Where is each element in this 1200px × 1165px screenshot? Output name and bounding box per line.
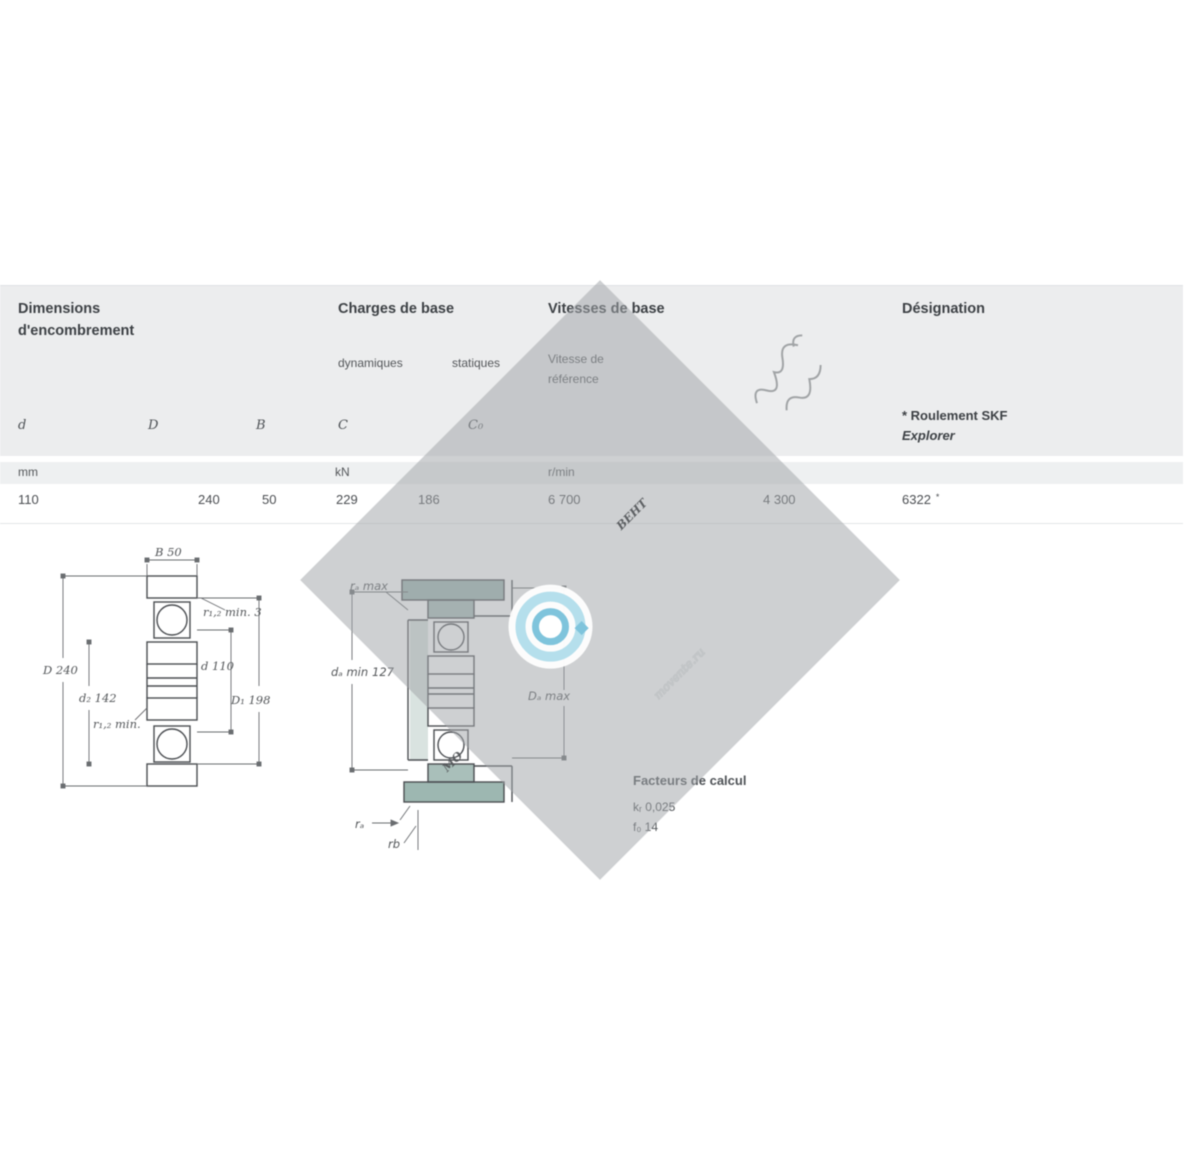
bearing-section-outline	[147, 576, 197, 786]
dim-label-d2: d₂ 142	[79, 691, 117, 705]
explorer-note-line1: * Roulement SKF	[902, 408, 1007, 424]
page-content: Dimensions d'encombrement Charges de bas…	[0, 0, 1200, 1165]
col-title-designation: Désignation	[902, 300, 985, 318]
symbol-C: C	[338, 418, 348, 434]
unit-rmin: r/min	[548, 465, 575, 480]
explorer-star: *	[931, 492, 940, 502]
housing-shaft-shading	[402, 580, 504, 802]
symbol-d: d	[18, 418, 26, 434]
table-bottom-rule	[0, 523, 1183, 524]
symbol-D: D	[148, 418, 158, 434]
unit-kn: kN	[335, 465, 350, 480]
calc-title: Facteurs de calcul	[633, 773, 746, 789]
dim-label-Da-max: Dₐ max	[528, 689, 570, 703]
explorer-note-line2: Explorer	[902, 428, 955, 444]
dim-label-da-min: dₐ min	[331, 665, 368, 679]
watermark-brand-right: ВЕНТ	[613, 495, 651, 533]
dim-label-r12-inner: r₁,₂ min.	[93, 717, 141, 731]
dim-label-da-value: 127	[372, 665, 395, 679]
dim-label-ra: rₐ	[355, 817, 364, 831]
unit-mm: mm	[18, 465, 38, 480]
cell-static-C0: 186	[418, 492, 440, 508]
dim-label-D1: D₁ 198	[230, 693, 270, 707]
table-units-band	[0, 462, 1183, 484]
symbol-C0: C₀	[468, 418, 483, 434]
dim-label-rb: rb	[388, 837, 400, 851]
dim-label-d: d 110	[201, 659, 234, 673]
watermark-domain: movente.ru	[651, 645, 708, 702]
catalog-page: Dimensions d'encombrement Charges de bas…	[0, 0, 1200, 1165]
cell-width-B: 50	[262, 492, 276, 508]
calc-f0: f₀ 14	[633, 820, 658, 835]
col-sub-dynamic: dynamiques	[338, 356, 403, 371]
col-title-dimensions-line2: d'encombrement	[18, 322, 134, 340]
cell-outer-D: 240	[198, 492, 220, 508]
designation-number: 6322	[902, 492, 931, 507]
col-title-speeds: Vitesses de base	[548, 300, 665, 318]
cell-bore-d: 110	[18, 492, 39, 508]
cell-lim-speed: 4 300	[763, 492, 796, 508]
dim-label-B: B 50	[154, 545, 182, 559]
bearing-section-drawing: B 50 r₁,₂ min. 3 D 240 d₂ 142 r₁,₂ min. …	[35, 540, 325, 805]
symbol-B: B	[256, 418, 266, 434]
dim-label-D: D 240	[42, 663, 78, 677]
cell-ref-speed: 6 700	[548, 492, 581, 508]
dim-label-ra-max: rₐ max	[350, 579, 388, 593]
col-sub-speed-line2: référence	[548, 372, 599, 387]
calc-kr: kᵣ 0,025	[633, 800, 675, 815]
mounting-drawing: rₐ max dₐ min 127 Dₐ max rₐ rb	[330, 558, 580, 868]
cell-designation: 6322*	[902, 492, 939, 508]
col-sub-static: statiques	[452, 356, 500, 371]
col-title-dimensions-line1: Dimensions	[18, 300, 100, 318]
dim-label-r12: r₁,₂ min. 3	[203, 605, 262, 619]
col-title-loads: Charges de base	[338, 300, 454, 318]
col-sub-speed-line1: Vitesse de	[548, 352, 604, 367]
cell-dynamic-C: 229	[336, 492, 358, 508]
